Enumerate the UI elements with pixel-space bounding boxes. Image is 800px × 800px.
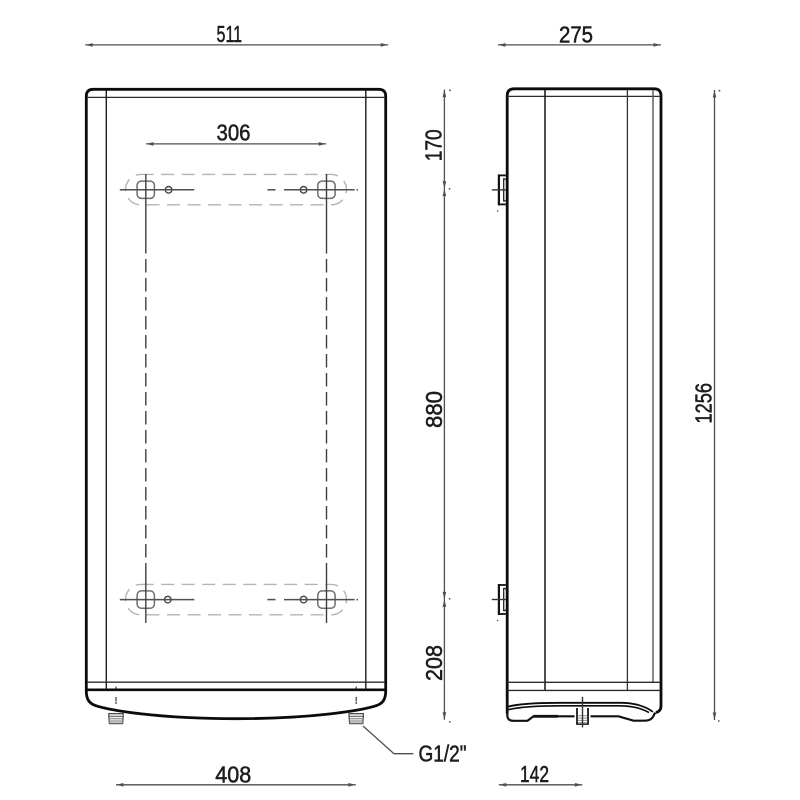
svg-text:G1/2": G1/2"	[419, 741, 467, 767]
svg-text:208: 208	[421, 645, 447, 681]
svg-text:408: 408	[215, 761, 251, 787]
svg-text:142: 142	[520, 761, 549, 787]
svg-text:880: 880	[421, 391, 447, 428]
svg-text:275: 275	[559, 22, 593, 48]
svg-text:306: 306	[217, 119, 251, 145]
svg-text:170: 170	[421, 129, 447, 161]
svg-text:511: 511	[217, 21, 243, 47]
svg-text:1256: 1256	[690, 383, 716, 424]
